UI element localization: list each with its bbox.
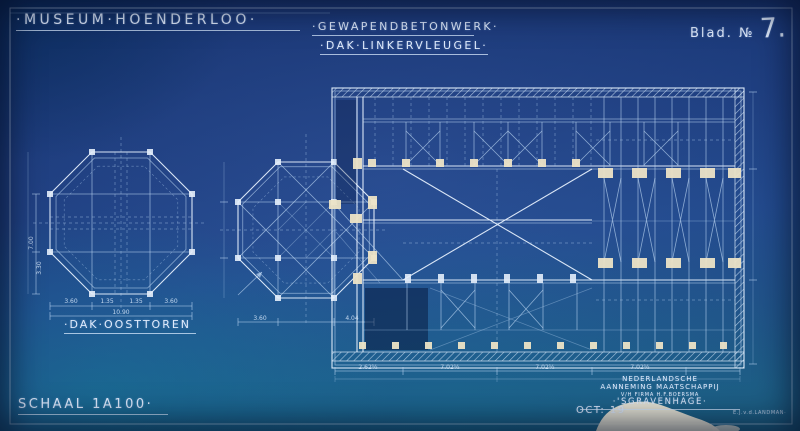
dim-plan-bay3: 7.02½ (535, 364, 554, 371)
dim-oct-seg2: 1.35 (100, 298, 114, 305)
project-title: ·MUSEUM·HOENDERLOO· (16, 12, 300, 31)
east-tower-roof-plan (28, 137, 207, 320)
blueprint-linework: 3.60 1.35 1.35 3.60 10.90 7.00 3.30 3.60… (0, 0, 800, 431)
dim-oct-left2: 3.30 (36, 261, 43, 275)
drawing-type-title: ·GEWAPENDBETONWERK· (312, 20, 474, 36)
blueprint-sheet: 3.60 1.35 1.35 3.60 10.90 7.00 3.30 3.60… (0, 0, 800, 431)
border-frame (10, 8, 792, 424)
scale-label: SCHAAL 1A100· (18, 397, 168, 415)
sheet-number-block: Blad. № 7. (690, 13, 785, 44)
company-line1: NEDERLANDSCHE (580, 375, 740, 383)
dim-mid-seg2: 4.04 (345, 315, 359, 322)
company-line2: AANNEMING MAATSCHAPPIJ (580, 383, 740, 391)
sheet-number: 7. (759, 12, 786, 44)
left-wing-roof-plan (329, 88, 757, 382)
dim-oct-seg4: 3.60 (164, 298, 178, 305)
dim-plan-bay1: 2.62½ (358, 364, 377, 371)
sheet-label: Blad. № (690, 26, 755, 41)
west-tower-roof-plan (220, 134, 386, 326)
east-tower-label: ·DAK·OOSTTOREN (64, 318, 196, 334)
dim-plan-bay2: 7.02½ (440, 364, 459, 371)
date-label: OCT: 19 (576, 405, 626, 416)
dim-plan-bay4: 7.02½ (630, 364, 649, 371)
dim-mid-seg1: 3.60 (253, 315, 267, 322)
dim-oct-total: 10.90 (112, 309, 129, 316)
dim-oct-seg1: 3.60 (64, 298, 78, 305)
drawing-part-title: ·DAK·LINKERVLEUGEL· (320, 39, 488, 55)
dimension-figures: 3.60 1.35 1.35 3.60 10.90 7.00 3.30 3.60… (28, 236, 650, 371)
signature: E.J.v.d.LANDMAN· (733, 410, 786, 416)
dim-oct-left1: 7.00 (28, 236, 35, 250)
dim-oct-seg3: 1.35 (129, 298, 143, 305)
